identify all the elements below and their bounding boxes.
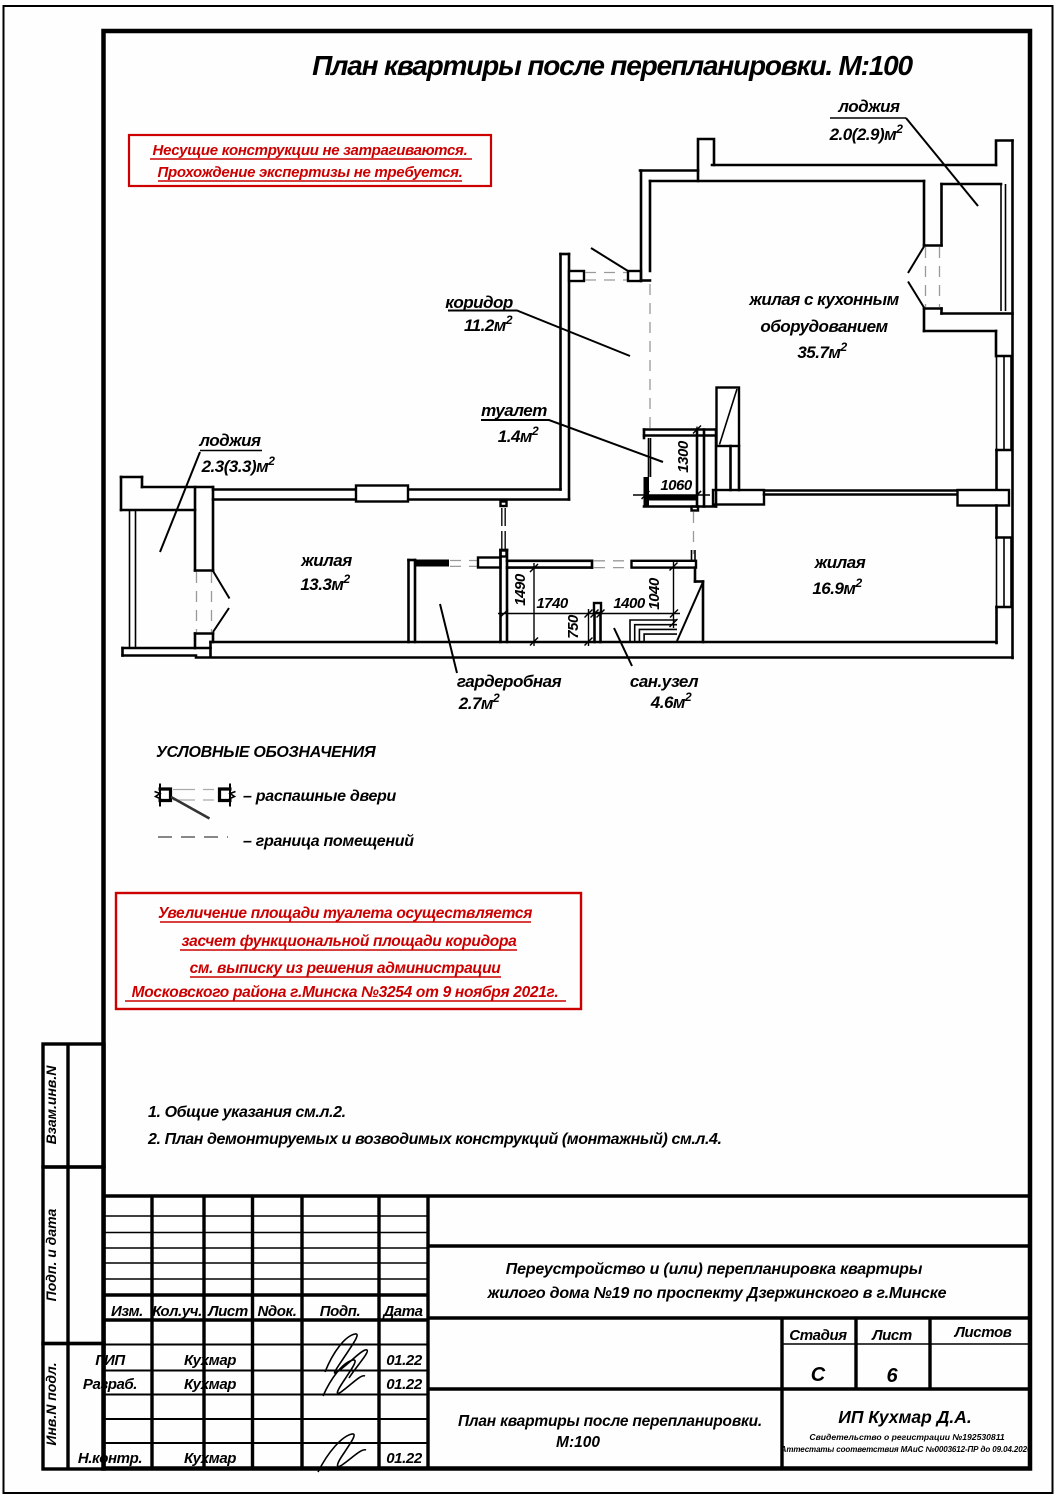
svg-text:Аттестаты соответствия МАиС №0: Аттестаты соответствия МАиС №0003612-ПР …	[780, 1445, 1032, 1454]
svg-text:жилая: жилая	[300, 551, 352, 570]
svg-text:2.0(2.9)м2: 2.0(2.9)м2	[829, 122, 904, 144]
svg-text:Взам.инв.N: Взам.инв.N	[43, 1065, 59, 1145]
svg-text:С: С	[811, 1364, 826, 1386]
svg-text:2. План демонтируемых и возво: 2. План демонтируемых и возводимых конст…	[147, 1131, 722, 1148]
svg-text:Разраб.: Разраб.	[83, 1376, 137, 1393]
svg-text:1060: 1060	[660, 477, 693, 494]
svg-text:01.22: 01.22	[386, 1450, 423, 1467]
svg-text:жилого дома №19 по проспекту Д: жилого дома №19 по проспекту Дзержинског…	[487, 1285, 947, 1302]
svg-text:1300: 1300	[675, 440, 692, 473]
svg-text:Переустройство и (или) перепла: Переустройство и (или) перепланировка кв…	[506, 1261, 923, 1278]
svg-text:Свидетельство о регистрации №1: Свидетельство о регистрации №192530811	[809, 1432, 1004, 1442]
svg-text:01.22: 01.22	[386, 1376, 423, 1393]
svg-text:жилая с кухонным: жилая с кухонным	[748, 290, 899, 309]
svg-text:Кухмар: Кухмар	[184, 1450, 236, 1467]
svg-text:1490: 1490	[512, 573, 529, 606]
svg-text:Стадия: Стадия	[789, 1327, 847, 1344]
svg-text:13.3м2: 13.3м2	[300, 572, 350, 594]
svg-text:План квартиры после перепланир: План квартиры после перепланировки.	[458, 1413, 762, 1430]
svg-text:лоджия: лоджия	[198, 431, 261, 450]
svg-text:Увеличение площади туалета осу: Увеличение площади туалета осуществляетс…	[158, 905, 532, 922]
svg-text:План квартиры после перепланир: План квартиры после перепланировки. М:10…	[312, 50, 913, 81]
svg-text:Прохождение экспертизы не треб: Прохождение экспертизы не требуется.	[158, 164, 463, 181]
svg-text:1. Общие указания см.л.2.: 1. Общие указания см.л.2.	[148, 1104, 346, 1121]
svg-text:УСЛОВНЫЕ ОБОЗНАЧЕНИЯ: УСЛОВНЫЕ ОБОЗНАЧЕНИЯ	[156, 744, 376, 761]
svg-text:Кухмар: Кухмар	[184, 1352, 236, 1369]
svg-text:лоджия: лоджия	[837, 97, 900, 116]
svg-text:Nдок.: Nдок.	[257, 1303, 296, 1320]
svg-text:Лист: Лист	[207, 1303, 248, 1320]
svg-text:Московского района г.Минска №: Московского района г.Минска №3254 от 9 н…	[132, 984, 559, 1001]
svg-text:сан.узел: сан.узел	[630, 672, 699, 691]
svg-text:– распашные двери: – распашные двери	[243, 788, 397, 805]
svg-text:Несущие конструкции не затраги: Несущие конструкции не затрагиваются.	[153, 142, 468, 159]
svg-text:гардеробная: гардеробная	[457, 672, 562, 691]
svg-text:Кол.уч.: Кол.уч.	[152, 1303, 202, 1320]
svg-text:16.9м2: 16.9м2	[812, 576, 862, 598]
svg-text:01.22: 01.22	[386, 1352, 423, 1369]
svg-text:коридор: коридор	[445, 293, 513, 312]
svg-text:1400: 1400	[613, 595, 646, 612]
svg-text:Подп.: Подп.	[320, 1303, 361, 1320]
svg-text:Лист: Лист	[871, 1327, 912, 1344]
svg-text:Подп. и дата: Подп. и дата	[43, 1208, 59, 1301]
svg-text:оборудованием: оборудованием	[760, 317, 888, 336]
svg-text:750: 750	[565, 614, 582, 639]
svg-text:35.7м2: 35.7м2	[797, 340, 847, 362]
svg-text:Листов: Листов	[954, 1324, 1012, 1341]
svg-text:6: 6	[886, 1365, 898, 1387]
svg-text:– граница помещений: – граница помещений	[243, 833, 414, 850]
svg-text:1740: 1740	[536, 595, 569, 612]
svg-text:туалет: туалет	[481, 401, 547, 420]
svg-text:2.3(3.3)м2: 2.3(3.3)м2	[201, 454, 276, 476]
svg-text:см. выписку из решения админис: см. выписку из решения администрации	[190, 960, 502, 977]
svg-text:Дата: Дата	[381, 1303, 422, 1320]
svg-text:М:100: М:100	[556, 1434, 600, 1451]
svg-text:засчет функциональной площади: засчет функциональной площади коридора	[182, 933, 518, 950]
svg-text:жилая: жилая	[814, 553, 866, 572]
svg-text:11.2м2: 11.2м2	[464, 313, 513, 335]
svg-text:Н.контр.: Н.контр.	[78, 1450, 142, 1467]
svg-text:Изм.: Изм.	[111, 1303, 143, 1320]
svg-text:ИП Кухмар Д.А.: ИП Кухмар Д.А.	[838, 1407, 971, 1427]
svg-text:Инв.N подл.: Инв.N подл.	[43, 1362, 59, 1445]
svg-text:ГИП: ГИП	[95, 1352, 126, 1369]
svg-text:1040: 1040	[646, 577, 663, 610]
svg-text:Кухмар: Кухмар	[184, 1376, 236, 1393]
